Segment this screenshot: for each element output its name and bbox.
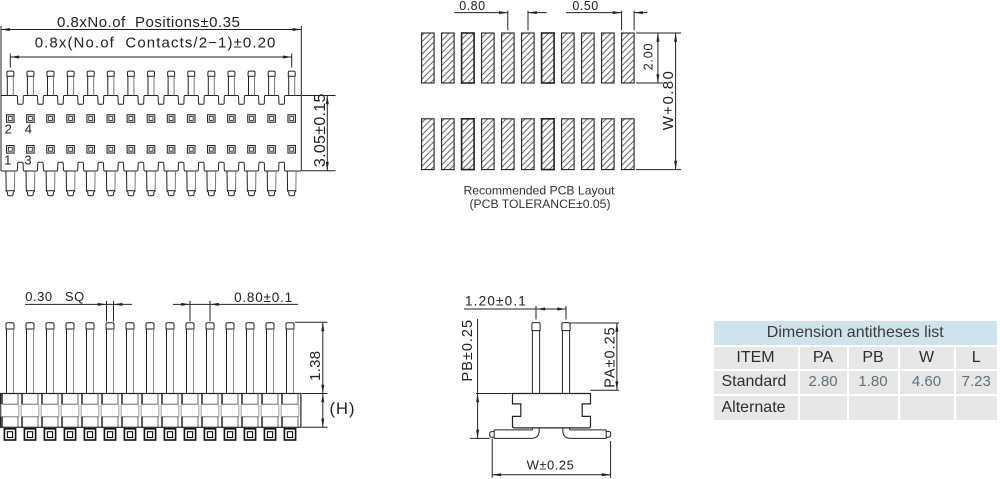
svg-text:0.80±0.1: 0.80±0.1 <box>234 290 293 305</box>
svg-text:3: 3 <box>24 153 31 168</box>
svg-text:0.8x(No.of Contacts/2−1)±0.20: 0.8x(No.of Contacts/2−1)±0.20 <box>35 35 277 52</box>
svg-text:W±0.25: W±0.25 <box>527 458 575 473</box>
svg-text:PB±0.25: PB±0.25 <box>460 319 476 382</box>
svg-text:Recommended PCB Layout: Recommended PCB Layout <box>463 184 615 198</box>
svg-text:(H): (H) <box>330 400 356 418</box>
svg-text:3.05±0.15: 3.05±0.15 <box>312 93 329 167</box>
svg-text:0.8xNo.of Positions±0.35: 0.8xNo.of Positions±0.35 <box>57 14 240 31</box>
svg-text:PA±0.25: PA±0.25 <box>603 326 619 387</box>
svg-text:1: 1 <box>4 153 11 168</box>
svg-text:0.30 SQ: 0.30 SQ <box>25 289 84 304</box>
svg-text:0.50: 0.50 <box>572 0 598 13</box>
svg-text:1.38: 1.38 <box>307 351 324 381</box>
svg-text:2.00: 2.00 <box>642 43 656 71</box>
svg-text:1.20±0.1: 1.20±0.1 <box>465 294 527 309</box>
svg-text:2: 2 <box>5 122 12 137</box>
svg-text:0.80: 0.80 <box>459 0 485 13</box>
svg-text:(PCB TOLERANCE±0.05): (PCB TOLERANCE±0.05) <box>469 197 610 211</box>
svg-text:4: 4 <box>25 122 32 137</box>
svg-text:W+0.80: W+0.80 <box>660 70 677 131</box>
